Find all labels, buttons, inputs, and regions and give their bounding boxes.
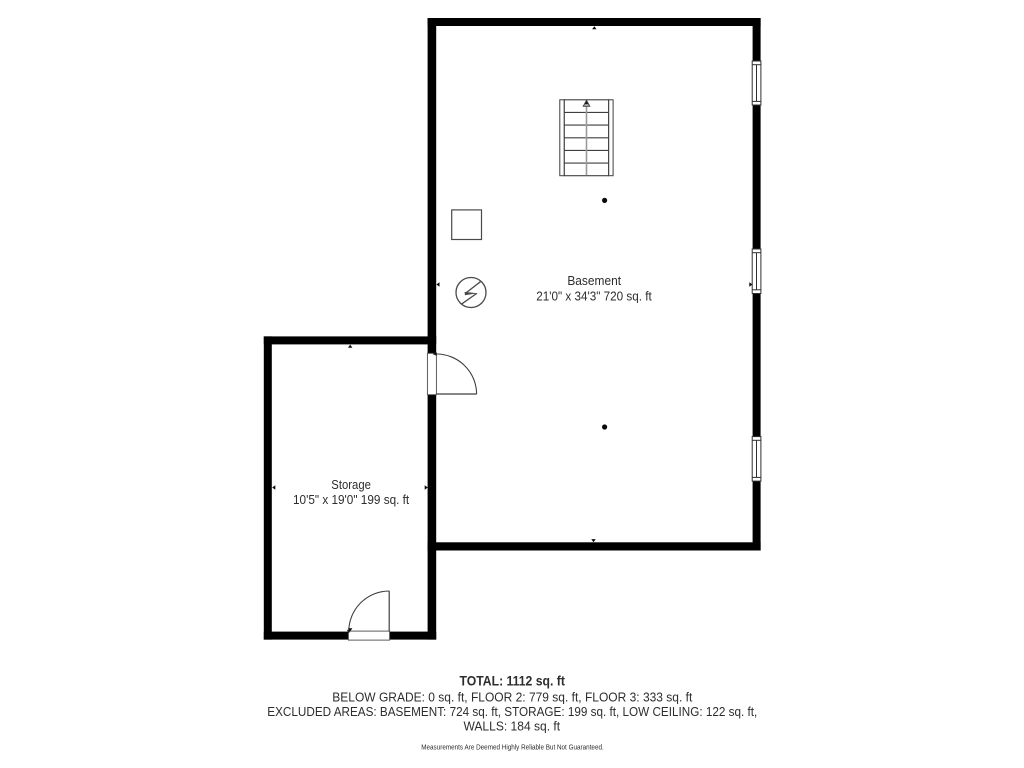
- svg-text:10'5" x 19'0" 199 sq. ft: 10'5" x 19'0" 199 sq. ft: [293, 493, 410, 507]
- svg-text:TOTAL: 1112 sq. ft: TOTAL: 1112 sq. ft: [460, 673, 566, 688]
- svg-text:Measurements Are Deemed Highly: Measurements Are Deemed Highly Reliable …: [421, 742, 604, 751]
- svg-text:Basement: Basement: [567, 274, 621, 288]
- svg-text:Storage: Storage: [331, 478, 371, 492]
- svg-text:21'0" x 34'3" 720 sq. ft: 21'0" x 34'3" 720 sq. ft: [536, 290, 652, 304]
- svg-text:BELOW GRADE: 0 sq. ft, FLOOR 2: BELOW GRADE: 0 sq. ft, FLOOR 2: 779 sq. …: [332, 690, 692, 705]
- svg-text:EXCLUDED AREAS: BASEMENT: 724: EXCLUDED AREAS: BASEMENT: 724 sq. ft, ST…: [267, 704, 757, 719]
- svg-text:WALLS: 184 sq. ft: WALLS: 184 sq. ft: [463, 718, 560, 733]
